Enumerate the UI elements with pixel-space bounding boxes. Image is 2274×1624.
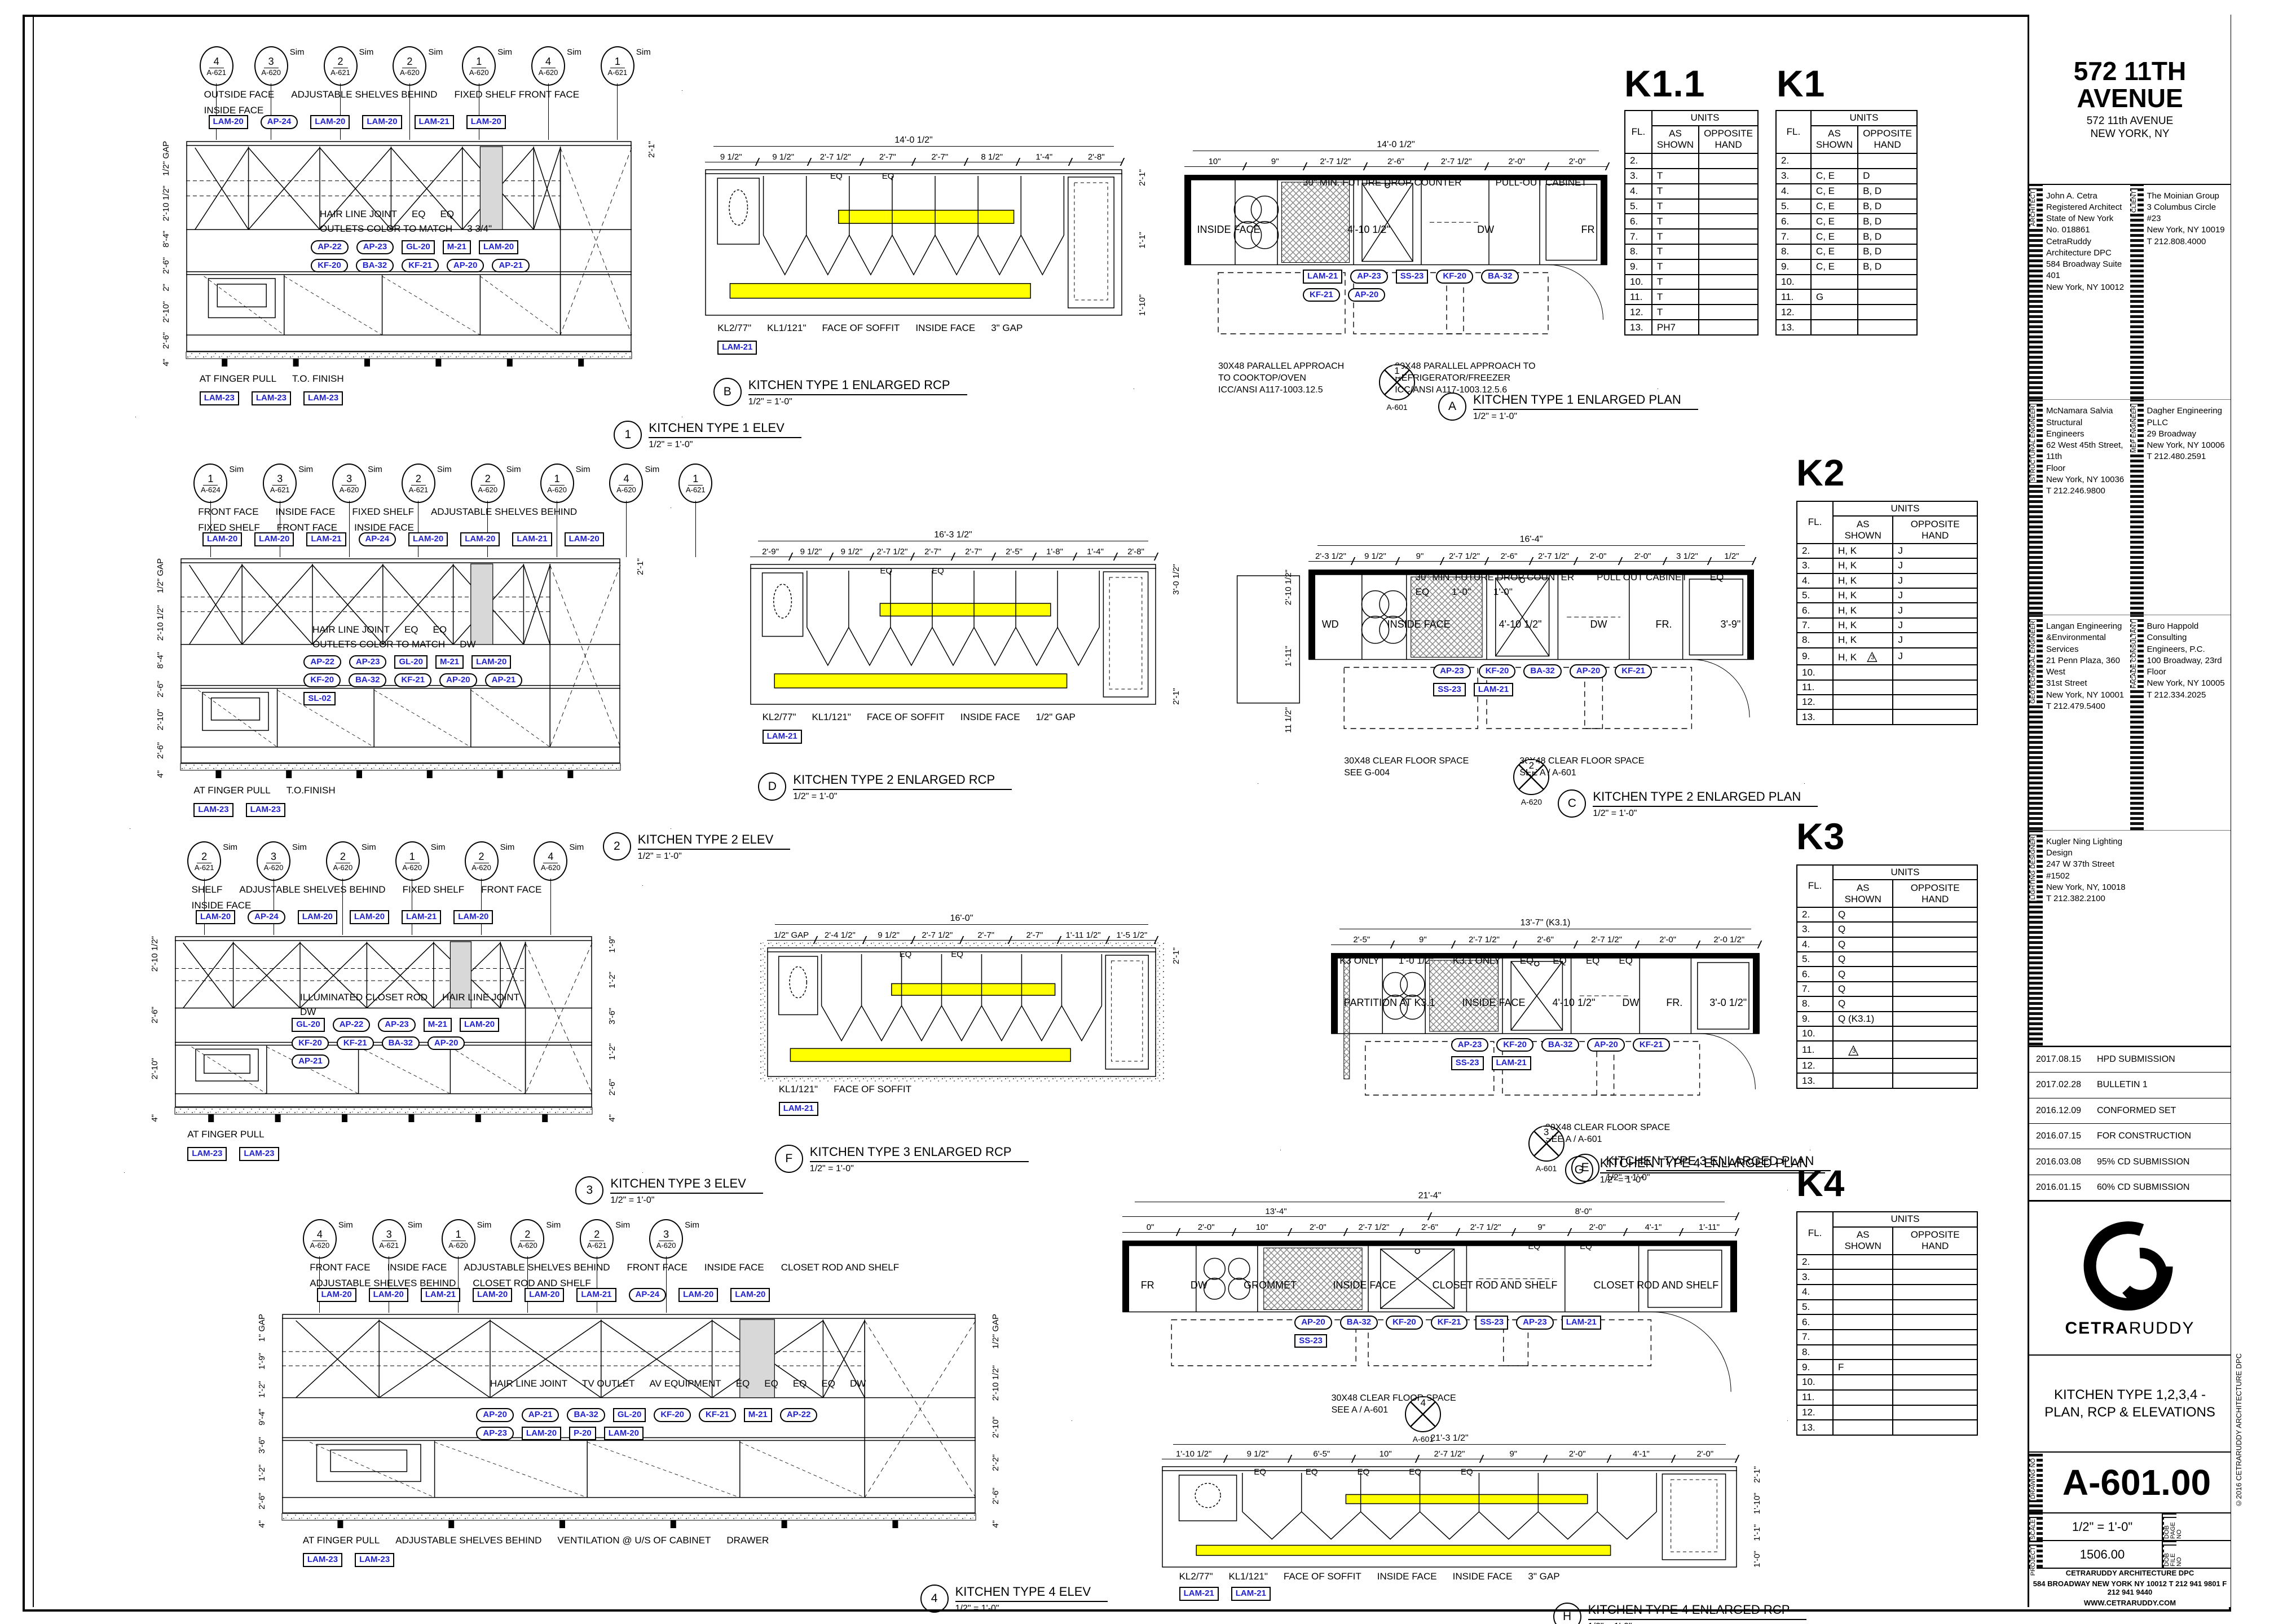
K4-units-table: FL.UNITS AS SHOWNOPPOSITE HAND2.3.4.5.6.…: [1796, 1211, 1978, 1436]
k-table-row: 3.C, ED: [1776, 169, 1917, 184]
dimension: 3'-6": [257, 1437, 267, 1454]
finish-tag: LAM-21: [717, 341, 757, 355]
k-table-row: 2.: [1625, 153, 1758, 169]
k-table-row: 7.C, EB, D: [1776, 229, 1917, 244]
firm-address: 584 BROADWAY NEW YORK NY 10012 T 212 941…: [2029, 1579, 2231, 1596]
annotation-label: ADJUSTABLE SHELVES BEHIND: [310, 1278, 456, 1289]
annotation-label: EQ: [1553, 955, 1567, 967]
dimension: 4'-1": [1625, 1223, 1681, 1233]
k-table-row: 5.Q: [1797, 952, 1977, 967]
dimension: 2'-2": [991, 1454, 1001, 1471]
drawing-title: 2 KITCHEN TYPE 2 ELEV1/2" = 1'-0": [603, 832, 896, 862]
finish-tag: KF-20: [1479, 664, 1516, 678]
dimension: 2'-1": [1171, 688, 1181, 705]
revision-row: 2016.12.09 CONFORMED SET: [2029, 1098, 2231, 1124]
logo-text-bold: CETRA: [2065, 1319, 2128, 1338]
k1-table: FL.UNITS AS SHOWNOPPOSITE HAND2.3.C, ED4…: [1775, 110, 1918, 336]
finish-tag: AP-21: [492, 259, 530, 273]
annotation-label: HAIR LINE JOINT: [312, 624, 390, 636]
annotation-label: DW: [300, 1007, 316, 1018]
k-table-row: 5.C, EB, D: [1776, 199, 1917, 214]
detail-bubble[interactable]: 3A-620: [254, 46, 288, 86]
revision-label: BULLETIN 1: [2097, 1080, 2148, 1090]
dimension: 2'-0": [1576, 551, 1620, 562]
finish-tag: AP-24: [359, 532, 396, 546]
detail-bubble[interactable]: 3A-621: [263, 464, 297, 503]
detail-bubble[interactable]: 2A-620: [510, 1219, 544, 1259]
annotation-label: INSIDE FACE: [204, 105, 264, 116]
k1-heading: K1: [1777, 62, 1825, 105]
finish-tag: LAM-20: [678, 1288, 718, 1302]
detail-bubble[interactable]: 2A-621: [580, 1219, 614, 1259]
sim-label: Sim: [546, 1220, 561, 1230]
annotation-label: INSIDE FACE: [276, 506, 336, 518]
annotation-label: 30" MIN. FUTURE DROP COUNTER: [1303, 177, 1462, 188]
finish-tag: SL-02: [303, 692, 336, 706]
finish-tag: BA-32: [356, 259, 394, 273]
detail-bubble[interactable]: 4A-620: [609, 464, 643, 503]
finish-tag: LAM-20: [460, 532, 500, 546]
finish-tag: GL-20: [613, 1408, 646, 1422]
finish-tag: LAM-21: [1303, 270, 1342, 284]
annotation-label: FRONT FACE: [277, 522, 337, 533]
finish-tag: BA-32: [1481, 270, 1519, 284]
dimension: 8'-4": [156, 652, 165, 669]
scale-box: SCALE 1/2" = 1'-0" DOB PAGE NO: [2029, 1513, 2231, 1541]
k-table-row: 8.: [1797, 1345, 1977, 1360]
rcp-linework: [767, 947, 1156, 1077]
annotation-label: KL1/121": [767, 323, 806, 334]
kitchen-type-4-elevation: 4A-620Sim3A-621Sim1A-620Sim2A-620Sim2A-6…: [282, 1314, 976, 1528]
finish-tag: LAM-20: [604, 1427, 644, 1441]
finish-tag: LAM-23: [187, 1147, 227, 1161]
finish-tag: KF-21: [337, 1036, 374, 1051]
revision-date: 2017.02.28: [2029, 1080, 2097, 1090]
revision-row: 2017.08.15 HPD SUBMISSION: [2029, 1047, 2231, 1073]
k-table-row: 13.: [1776, 320, 1917, 335]
dimension: 9": [1398, 551, 1442, 562]
annotation-label: AV EQUIPMENT: [649, 1378, 721, 1389]
section-marker[interactable]: 3 A-601: [1528, 1126, 1565, 1173]
dimension: 1'-2": [257, 1381, 267, 1398]
detail-bubble[interactable]: 1A-620: [395, 841, 429, 881]
dimension: 4": [607, 1114, 617, 1122]
rcp-linework: [1162, 1466, 1737, 1568]
overall-dimension: 13'-7" (K3.1): [1339, 918, 1751, 929]
finish-tag: KF-21: [394, 673, 431, 687]
detail-bubble[interactable]: 3A-620: [649, 1219, 683, 1259]
consultant-role: FACADE CONSULTANT: [2131, 620, 2138, 690]
dimension: 2'-7 1/2": [1346, 1223, 1402, 1233]
dimension: 1'-10": [1752, 1493, 1762, 1514]
detail-bubble[interactable]: 2A-620: [471, 464, 505, 503]
detail-bubble[interactable]: 3A-620: [257, 841, 290, 881]
dimension: 2'-10": [150, 1058, 160, 1079]
drawing-title: G KITCHEN TYPE 4 ENLARGED PLAN1/2" = 1'-…: [1565, 1156, 1825, 1185]
consultant-role: ARCHITECT: [2030, 189, 2037, 227]
rcp-linework: [705, 169, 1122, 316]
sim-label: Sim: [229, 465, 244, 474]
section-marker[interactable]: 1 A-601: [1379, 364, 1415, 412]
dimension: 10": [1234, 1223, 1290, 1233]
dimension: 2'-6": [1365, 157, 1426, 167]
k-table-row: 12.: [1797, 695, 1977, 709]
annotation-label: EQ: [736, 1378, 750, 1389]
detail-bubble[interactable]: 4A-621: [200, 46, 233, 86]
finish-tag: AP-23: [1451, 1038, 1489, 1052]
detail-bubble[interactable]: 2A-620: [465, 841, 499, 881]
k-table-row: 10.: [1776, 275, 1917, 290]
dimension: 2'-6": [156, 742, 165, 759]
dimension: 8'-0": [1430, 1207, 1737, 1217]
dimension: 2'-6": [156, 681, 165, 698]
kitchen-type-1-rcp: 14'-0 1/2" 9 1/2"9 1/2"2'-7 1/2"2'-7"2'-…: [705, 169, 1122, 316]
finish-tag: LAM-21: [1474, 683, 1513, 697]
dimension: 1'-2": [607, 972, 617, 988]
detail-bubble[interactable]: 4A-620: [303, 1219, 337, 1259]
revision-label: 95% CD SUBMISSION: [2097, 1157, 2189, 1167]
detail-bubble[interactable]: 2A-621: [187, 841, 221, 881]
finish-tag: AP-20: [476, 1408, 514, 1422]
plan-label: INSIDE FACE: [1387, 619, 1451, 630]
finish-tag: LAM-21: [1231, 1587, 1271, 1601]
consultant-block: MEP ENGINEERDagher Engineering PLLC 29 B…: [2130, 400, 2231, 615]
dimension: 2'-3 1/2": [1308, 551, 1353, 562]
dimension: 1'-4": [1018, 152, 1070, 162]
K2-units-table: FL.UNITS AS SHOWNOPPOSITE HAND2.H, KJ3.H…: [1796, 501, 1978, 725]
finish-tag: BA-32: [349, 673, 386, 687]
annotation-label: FIXED SHELF: [198, 522, 260, 533]
eq-dimension: EQ: [1254, 1467, 1266, 1477]
annotation-label: ILLUMINATED CLOSET ROD: [300, 992, 428, 1003]
finish-tag: AP-23: [476, 1427, 514, 1441]
finish-tag: SS-23: [1433, 683, 1466, 697]
kitchen-type-3-plan: 13'-7" (K3.1) 2'-5"9"2'-7 1/2"2'-6"2'-7 …: [1331, 953, 1760, 1100]
sim-label: Sim: [569, 842, 584, 852]
dimension: 2'-6": [991, 1488, 1001, 1504]
kitchen-type-4-plan: 21'-4" 13'-4"8'-0" 0"2'-0"10"2'-0"2'-7 1…: [1122, 1241, 1737, 1370]
consultant-info: Dagher Engineering PLLC 29 Broadway New …: [2144, 400, 2231, 615]
dimension: 4": [156, 770, 165, 778]
consultant-info: Kugler Ning Lighting Design 247 W 37th S…: [2043, 831, 2130, 1045]
k-table-row: 10.: [1797, 1026, 1977, 1041]
k2-table: FL.UNITS AS SHOWNOPPOSITE HAND2.H, KJ3.H…: [1796, 501, 1978, 725]
finish-tag: LAM-20: [522, 1427, 561, 1441]
annotation-label: PULL-OUT CABINET: [1496, 177, 1587, 188]
annotation-label: KL2/77": [717, 323, 751, 334]
detail-bubble[interactable]: 3A-621: [372, 1219, 406, 1259]
revision-row: 2016.01.15 60% CD SUBMISSION: [2029, 1175, 2231, 1201]
dimension: 1'-4": [1075, 547, 1116, 557]
revision-label: 60% CD SUBMISSION: [2097, 1182, 2189, 1193]
finish-tag: LAM-20: [196, 910, 235, 924]
annotation-label: ADJUSTABLE SHELVES BEHIND: [464, 1262, 610, 1273]
dimension: 11 1/2": [1284, 707, 1293, 733]
finish-tag: LAM-20: [350, 910, 389, 924]
k-table-row: 3.T: [1625, 169, 1758, 184]
annotation-label: EQ: [821, 1378, 835, 1389]
consultant-info: John A. Cetra Registered Architect State…: [2043, 185, 2130, 400]
dimension: 2'-1": [1171, 947, 1181, 964]
k-table-row: 13.PH7: [1625, 320, 1758, 335]
dimension: 3'-6": [607, 1008, 617, 1025]
detail-bubble[interactable]: 2A-621: [402, 464, 435, 503]
consultant-block: LIGHTING DESIGNERKugler Ning Lighting De…: [2029, 831, 2130, 1045]
drawing-number-box: DRAWING NO A-601.00: [2029, 1453, 2231, 1514]
scale-label: SCALE: [2030, 1518, 2037, 1541]
detail-bubble[interactable]: 1A-624: [193, 464, 227, 503]
finish-tag: KF-21: [1633, 1038, 1670, 1052]
consultant-role: STRUCTURAL ENGINEER: [2030, 404, 2037, 482]
dimension: 2'-7": [862, 152, 914, 162]
scale-value: 1/2" = 1'-0": [2043, 1513, 2162, 1540]
k-table-row: 8.C, EB, D: [1776, 244, 1917, 259]
k-table-row: 8.T: [1625, 244, 1758, 259]
finish-tag: LAM-20: [730, 1288, 770, 1302]
annotation-label: FACE OF SOFFIT: [1284, 1571, 1361, 1582]
finish-tag: LAM-23: [303, 1553, 342, 1567]
annotation-label: KL2/77": [763, 712, 796, 723]
dimension: 2'-0": [1620, 551, 1665, 562]
finish-tag: KF-21: [1615, 664, 1652, 678]
logo-text-light: RUDDY: [2129, 1319, 2195, 1338]
dimension: 1/2": [1709, 551, 1754, 562]
annotation-label: OUTLETS COLOR TO MATCH: [312, 639, 445, 650]
overall-dimension: 16'-0": [775, 913, 1148, 925]
dimension: 2'-6": [1515, 935, 1576, 945]
finish-tag: AP-21: [292, 1054, 329, 1069]
k-table-row: 2.: [1797, 1255, 1977, 1270]
annotation-label: T.O. FINISH: [292, 373, 344, 385]
dimension: 2'-7 1/2": [1305, 157, 1365, 167]
drawing-title: 4 KITCHEN TYPE 4 ELEV1/2" = 1'-0": [920, 1585, 1191, 1614]
dimension: 8 1/2": [966, 152, 1019, 162]
dimension: 2'-0 1/2": [1698, 935, 1760, 945]
annotation-label: 1'-0 1/2": [1399, 955, 1434, 967]
eq-dimension: EQ: [1306, 1467, 1318, 1477]
finish-tag: AP-23: [1433, 664, 1471, 678]
finish-tag: LAM-20: [202, 532, 242, 546]
annotation-label: EQ: [440, 209, 455, 220]
finish-tag: LAM-20: [369, 1288, 408, 1302]
dimension: 4'-1": [1609, 1449, 1673, 1459]
detail-bubble[interactable]: 1A-620: [442, 1219, 475, 1259]
detail-bubble[interactable]: 2A-620: [326, 841, 360, 881]
sim-label: Sim: [636, 47, 651, 57]
section-marker[interactable]: 2 A-620: [1513, 759, 1549, 806]
k-table-row: 9.H, K△3J: [1797, 648, 1977, 665]
k-table-row: 4.C, EB, D: [1776, 184, 1917, 199]
drawing-no-label: DRAWING NO: [2030, 1457, 2037, 1500]
k-table-row: 9.F: [1797, 1360, 1977, 1375]
title-block: 572 11TH AVENUE 572 11th AVENUE NEW YORK…: [2028, 15, 2231, 1607]
k4-heading: K4: [1796, 1162, 1845, 1204]
annotation-label: FACE OF SOFFIT: [822, 323, 900, 334]
finish-tag: LAM-20: [479, 240, 518, 254]
finish-tag: LAM-20: [466, 115, 506, 129]
sim-label: Sim: [431, 842, 446, 852]
k-table-row: 6.T: [1625, 214, 1758, 229]
k-table-row: 11.T: [1625, 289, 1758, 304]
k-table-row: 2.H, KJ: [1797, 544, 1977, 558]
annotation-label: EQ: [1710, 572, 1724, 583]
finish-tag: SS-23: [1475, 1316, 1508, 1330]
detail-bubble[interactable]: 4A-620: [531, 46, 565, 86]
annotation-label: DW: [460, 639, 475, 650]
drawing-title: F KITCHEN TYPE 3 ENLARGED RCP1/2" = 1'-0…: [775, 1145, 1029, 1174]
k-table-row: 7.Q: [1797, 982, 1977, 996]
dimension: 2'-10 1/2": [156, 605, 165, 641]
finish-tag: GL-20: [292, 1018, 325, 1032]
plan-label: DW: [1477, 224, 1494, 236]
drawing-title: C KITCHEN TYPE 2 ENLARGED PLAN1/2" = 1'-…: [1558, 789, 1818, 819]
dimension: 2'-7 1/2": [1417, 1449, 1481, 1459]
annotation-label: DRAWER: [726, 1535, 769, 1546]
detail-bubble[interactable]: 1A-621: [601, 46, 634, 86]
dimension: 2'-10": [991, 1416, 1001, 1438]
sim-label: Sim: [338, 1220, 353, 1230]
kitchen-type-2-elevation: 1A-624Sim3A-621Sim3A-620Sim2A-621Sim2A-6…: [180, 558, 620, 778]
revision-row: 2016.07.15 FOR CONSTRUCTION: [2029, 1124, 2231, 1149]
finish-tag: AP-24: [261, 115, 298, 129]
dimension: 1'-11": [1681, 1223, 1737, 1233]
annotation-label: 3 3/4": [467, 223, 492, 235]
sheet-title: KITCHEN TYPE 1,2,3,4 - PLAN, RCP & ELEVA…: [2029, 1356, 2231, 1453]
plan-label: 3'-0 1/2": [1709, 997, 1747, 1009]
finish-tag: LAM-21: [576, 1288, 616, 1302]
finish-tag: KF-21: [699, 1408, 736, 1422]
dimension: 2'-7 1/2": [913, 930, 962, 941]
plan-label: PARTITION AT K3.1: [1344, 997, 1435, 1009]
dimension: 2'-7 1/2": [872, 547, 913, 557]
dimension: 2'-6": [1487, 551, 1531, 562]
finish-tag: BA-32: [1541, 1038, 1579, 1052]
annotation-label: DW: [850, 1378, 866, 1389]
finish-tag: LAM-21: [306, 532, 346, 546]
annotation-label: FIXED SHELF: [352, 506, 414, 518]
finish-tag: BA-32: [1523, 664, 1561, 678]
k-table-row: 9.Q (K3.1): [1797, 1012, 1977, 1026]
plan-label: INSIDE FACE: [1333, 1279, 1396, 1291]
overall-dimension: 16'-3 1/2": [758, 530, 1148, 541]
detail-bubble[interactable]: 3A-620: [332, 464, 366, 503]
plan-label: FR: [1141, 1279, 1154, 1291]
finish-tag: KF-20: [654, 1408, 691, 1422]
dimension: 2'-6": [150, 1007, 160, 1023]
kitchen-type-2-plan: 16'-4" 2'-3 1/2"9 1/2"9"2'-7 1/2"2'-6"2'…: [1308, 570, 1754, 733]
annotation-label: ADJUSTABLE SHELVES BEHIND: [291, 89, 437, 100]
finish-tag: SS-23: [1396, 270, 1429, 284]
k-table-row: 11.: [1797, 1390, 1977, 1405]
annotation-label: INSIDE FACE: [1377, 1571, 1437, 1582]
finish-tag: BA-32: [567, 1408, 605, 1422]
finish-tag: AP-20: [1348, 288, 1386, 302]
eq-dimension: EQ: [932, 566, 944, 576]
finish-tag: AP-23: [349, 655, 387, 669]
dimension: 1'-1": [1138, 232, 1147, 249]
dimension: 2'-1": [1752, 1466, 1762, 1483]
annotation-label: INSIDE FACE: [354, 522, 414, 533]
finish-tag: LAM-23: [252, 391, 291, 405]
finish-tag: LAM-20: [565, 532, 604, 546]
annotation-label: 30" MIN. FUTURE DROP COUNTER: [1416, 572, 1575, 583]
dimension: 1'-11 1/2": [1059, 930, 1108, 941]
revision-label: HPD SUBMISSION: [2097, 1054, 2175, 1065]
finish-tag: AP-20: [447, 259, 484, 273]
dimension: 10": [1184, 157, 1245, 167]
revision-row: 2016.03.08 95% CD SUBMISSION: [2029, 1149, 2231, 1175]
detail-bubble[interactable]: 1A-621: [678, 464, 712, 503]
finish-tag: GL-20: [402, 240, 435, 254]
dimension: 2'-5": [994, 547, 1034, 557]
plan-label: CLOSET ROD AND SHELF: [1594, 1279, 1719, 1291]
finish-tag: AP-22: [311, 240, 349, 254]
detail-bubble[interactable]: 2A-621: [324, 46, 358, 86]
plan-label: FR: [1581, 224, 1595, 236]
dimension: 2'-7 1/2": [1442, 551, 1487, 562]
k-table-row: 4.T: [1625, 184, 1758, 199]
eq-dimension: EQ: [1528, 1242, 1540, 1251]
detail-bubble[interactable]: 1A-620: [540, 464, 574, 503]
k-table-row: 13.: [1797, 709, 1977, 725]
dimension: 1/2" GAP: [156, 558, 165, 593]
k-table-row: 5.T: [1625, 199, 1758, 214]
dimension: 1'-10 1/2": [1162, 1449, 1226, 1459]
revision-date: 2016.03.08: [2029, 1157, 2097, 1167]
k-table-row: 13.: [1797, 1420, 1977, 1435]
dimension: 2'-8": [1070, 152, 1123, 162]
finish-tag: LAM-20: [460, 1018, 499, 1032]
annotation-label: AT FINGER PULL: [303, 1535, 380, 1546]
dimension: 1'-10": [1138, 294, 1147, 316]
consultant-block: [2130, 831, 2231, 1045]
dimension: 4": [161, 359, 171, 367]
eq-dimension: EQ: [1461, 1467, 1473, 1477]
finish-tag: LAM-20: [362, 115, 402, 129]
finish-tag: AP-22: [333, 1018, 371, 1032]
firm-name: CETRARUDDY ARCHITECTURE DPC: [2066, 1569, 2194, 1577]
dimension: 2'-10 1/2": [991, 1365, 1001, 1401]
annotation-label: EQ: [404, 624, 418, 636]
revision-delta: △3: [1867, 650, 1877, 663]
finish-tag: LAM-21: [421, 1288, 460, 1302]
detail-bubble[interactable]: 2A-620: [393, 46, 426, 86]
annotation-label: EQ: [793, 1378, 807, 1389]
dimension: 2'-7": [1010, 930, 1059, 941]
annotation-label: FACE OF SOFFIT: [867, 712, 945, 723]
dimension: 1'-2": [257, 1464, 267, 1481]
sim-label: Sim: [500, 842, 515, 852]
overall-dimension: 14'-0 1/2": [713, 135, 1114, 147]
revision-date: 2016.07.15: [2029, 1131, 2097, 1141]
eq-dimension: EQ: [880, 566, 892, 576]
annotation-label: T.O.FINISH: [287, 785, 336, 796]
k-table-row: 7.: [1797, 1330, 1977, 1345]
consultant-block: GEOTECHNICAL ENGINEERLangan Engineering …: [2029, 615, 2130, 830]
sim-label: Sim: [685, 1220, 699, 1230]
finish-tag: LAM-23: [246, 803, 285, 817]
k-table-row: 7.H, KJ: [1797, 618, 1977, 633]
dimension: 9 1/2": [865, 930, 913, 941]
eq-dimension: EQ: [830, 171, 843, 181]
finish-tag: AP-23: [1516, 1316, 1554, 1330]
finish-tag: LAM-20: [310, 115, 350, 129]
k-table-row: 4.H, KJ: [1797, 573, 1977, 588]
detail-bubble[interactable]: 1A-620: [462, 46, 496, 86]
detail-bubble[interactable]: 4A-620: [534, 841, 567, 881]
plan-label: 3'-9": [1720, 619, 1740, 630]
plan-label: DW: [1191, 1279, 1207, 1291]
